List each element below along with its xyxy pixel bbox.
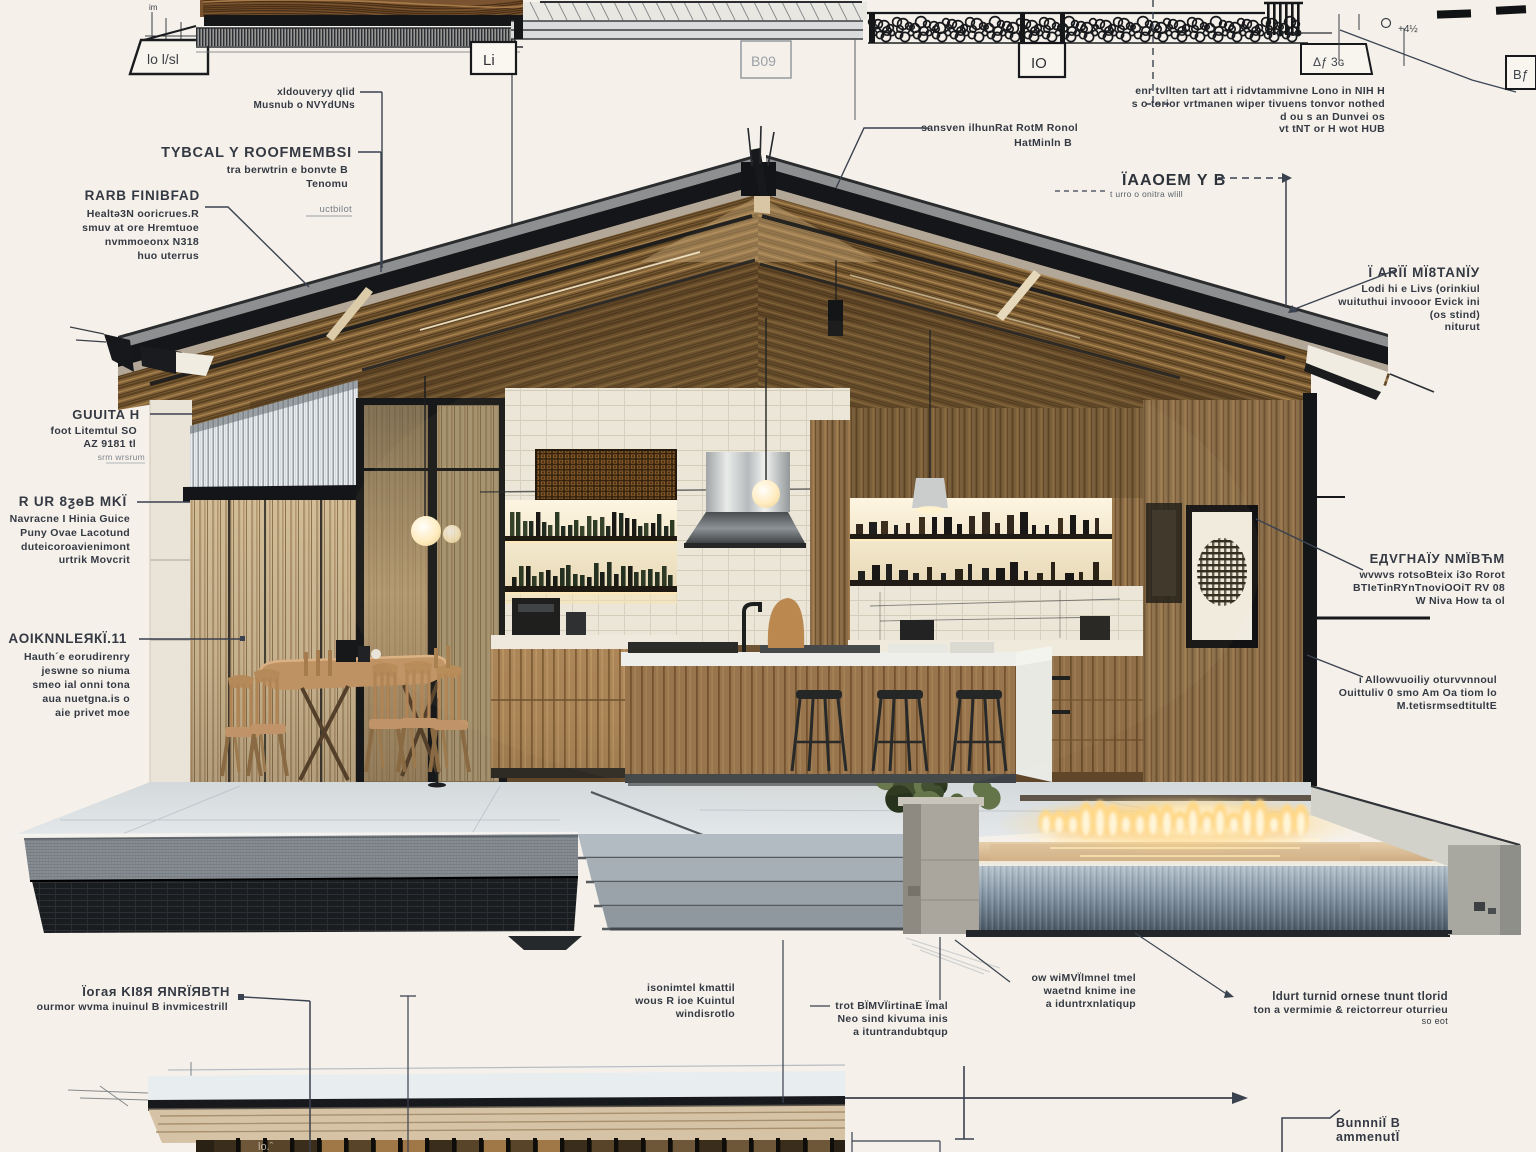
svg-text:huo uterrus: huo uterrus xyxy=(137,250,199,262)
svg-text:wous R ioe Kuintul: wous R ioe Kuintul xyxy=(634,995,735,1007)
svg-text:Puny Ovae Lacotund: Puny Ovae Lacotund xyxy=(20,527,130,539)
svg-text:BunnniЇ В: BunnniЇ В xyxy=(1336,1115,1400,1130)
svg-text:d ou s an Dunvei os: d ou s an Dunvei os xyxy=(1280,111,1385,123)
svg-text:sansven ilhunRat RotM Ronol: sansven ilhunRat RotM Ronol xyxy=(921,122,1078,134)
svg-text:wuituthui invooor Evick ini: wuituthui invooor Evick ini xyxy=(1337,296,1480,308)
svg-text:a ituntrandubtqup: a ituntrandubtqup xyxy=(853,1026,948,1038)
svg-text:Hauth´e eorudirenry: Hauth´e eorudirenry xyxy=(24,651,130,663)
svg-text:Ї АRЇЇ MЇ8ТАNЇУ: Ї АRЇЇ MЇ8ТАNЇУ xyxy=(1367,265,1480,280)
svg-text:aua nuetgna.is o: aua nuetgna.is o xyxy=(42,693,130,705)
svg-text:BTIeTinRYnTnoviOOiT RV 08: BTIeTinRYnTnoviOOiT RV 08 xyxy=(1353,582,1505,594)
svg-text:TYBCAL Y ROOFMEMBSI: TYBCAL Y ROOFMEMBSI xyxy=(161,145,352,161)
svg-text:AZ 9181 tl: AZ 9181 tl xyxy=(83,438,136,450)
svg-text:Healtə3N ooricrues.R: Healtə3N ooricrues.R xyxy=(87,208,199,220)
svg-text:trot BЇMVЇirtinaЕ Їmal: trot BЇMVЇirtinaЕ Їmal xyxy=(835,999,948,1012)
svg-text:lo l/sl: lo l/sl xyxy=(147,51,179,67)
svg-text:W Niva How ta ol: W Niva How ta ol xyxy=(1416,595,1505,607)
svg-text:isonimtel kmattil: isonimtel kmattil xyxy=(647,982,735,994)
svg-text:lo.ˆ: lo.ˆ xyxy=(258,1141,274,1152)
svg-text:srm wrsrum: srm wrsrum xyxy=(98,452,145,462)
svg-text:ow wiMVЇlmnel tmel: ow wiMVЇlmnel tmel xyxy=(1031,971,1136,984)
svg-text:xldouveryy qlid: xldouveryy qlid xyxy=(277,87,355,98)
svg-text:enr tvllten tart att i ridvtam: enr tvllten tart att i ridvtammivne Lono… xyxy=(1135,85,1385,97)
svg-text:t urro o onitra wlill: t urro o onitra wlill xyxy=(1110,189,1183,199)
svg-text:+4½: +4½ xyxy=(1398,24,1418,35)
svg-text:i Allowvuoiliy oturvvnnoul: i Allowvuoiliy oturvvnnoul xyxy=(1359,674,1497,686)
svg-text:aie privet moe: aie privet moe xyxy=(55,707,130,719)
svg-text:Tenomu: Tenomu xyxy=(306,178,348,190)
svg-text:tra berwtrin e bonvte B: tra berwtrin e bonvte B xyxy=(227,164,348,176)
svg-text:HatMinln B: HatMinln B xyxy=(1014,137,1072,149)
svg-text:nvmmoeonx N318: nvmmoeonx N318 xyxy=(105,236,199,248)
svg-text:RARB FINIBFAD: RARB FINIBFAD xyxy=(85,188,200,203)
svg-text:Lodi hi e Livs (orinkiul: Lodi hi e Livs (orinkiul xyxy=(1361,283,1480,295)
svg-text:Neo sind kivuma inis: Neo sind kivuma inis xyxy=(838,1013,948,1025)
svg-text:Musnub o NVYdUNs: Musnub o NVYdUNs xyxy=(254,100,356,111)
svg-text:ЇААОЕM Y В: ЇААОЕM Y В xyxy=(1121,171,1226,189)
svg-text:vt tNT or H wot HUB: vt tNT or H wot HUB xyxy=(1279,123,1385,135)
svg-text:smuv at ore Hremtuoe: smuv at ore Hremtuoe xyxy=(82,222,199,234)
svg-text:jeswne so niuma: jeswne so niuma xyxy=(40,665,130,677)
svg-text:a iduntrxnlatiqup: a iduntrxnlatiqup xyxy=(1046,998,1136,1010)
svg-text:AОIKNNLEЯКЇ.11: AОIKNNLEЯКЇ.11 xyxy=(8,631,127,646)
svg-text:R UR 8ƺөB MKЇ: R UR 8ƺөB MKЇ xyxy=(19,494,128,509)
svg-text:(os stind): (os stind) xyxy=(1430,309,1480,321)
svg-text:Li: Li xyxy=(483,52,495,69)
svg-text:waetnd knime ine: waetnd knime ine xyxy=(1043,985,1136,997)
svg-text:duteicoroavienimont: duteicoroavienimont xyxy=(21,541,130,553)
svg-text:M.tetisrmsedtitultE: M.tetisrmsedtitultE xyxy=(1397,700,1497,712)
svg-text:niturut: niturut xyxy=(1445,321,1481,333)
svg-text:Navracne I Hinia Guice: Navracne I Hinia Guice xyxy=(10,513,130,525)
svg-text:ammenutЇ: ammenutЇ xyxy=(1336,1129,1400,1144)
svg-text:so eot: so eot xyxy=(1422,1016,1449,1026)
svg-text:IO: IO xyxy=(1031,55,1047,72)
svg-text:Bƒ: Bƒ xyxy=(1513,67,1529,82)
svg-text:EДVГHАЇУ NМЇBЋМ: EДVГHАЇУ NМЇBЋМ xyxy=(1370,551,1505,566)
svg-text:urtrik Movcrit: urtrik Movcrit xyxy=(59,554,130,566)
svg-text:wvwvs rotsoBteix i3o Rorot: wvwvs rotsoBteix i3o Rorot xyxy=(1359,569,1506,581)
svg-text:windisrotlo: windisrotlo xyxy=(675,1008,735,1020)
svg-text:im: im xyxy=(149,3,158,12)
svg-text:GUUITA H: GUUITA H xyxy=(72,407,140,422)
svg-text:ourmor wvma inuinul B invmices: ourmor wvma inuinul B invmicestrill xyxy=(37,1001,228,1013)
svg-text:foot Litemtul SO: foot Litemtul SO xyxy=(51,425,137,437)
svg-text:uctbilot: uctbilot xyxy=(319,204,352,215)
svg-text:s o torior vrtmanen wiper tivu: s o torior vrtmanen wiper tivuens tonvor… xyxy=(1132,98,1385,110)
svg-text:ton a vermimie & reictorreur o: ton a vermimie & reictorreur oturrieu xyxy=(1254,1004,1448,1016)
svg-text:Δƒ 3ɢ: Δƒ 3ɢ xyxy=(1313,55,1344,69)
svg-text:smeo ial onni tona: smeo ial onni tona xyxy=(32,679,130,691)
svg-text:B09: B09 xyxy=(751,53,776,69)
svg-text:Їoгая KI8Я ЯNRЇЯВTH: Їoгая KI8Я ЯNRЇЯВTH xyxy=(81,984,230,999)
svg-text:Ouittuliv 0 smo Am Oa tiom lo: Ouittuliv 0 smo Am Oa tiom lo xyxy=(1339,687,1497,699)
svg-text:ldurt turnid ornese tnunt tlor: ldurt turnid ornese tnunt tlorid xyxy=(1272,991,1448,1003)
